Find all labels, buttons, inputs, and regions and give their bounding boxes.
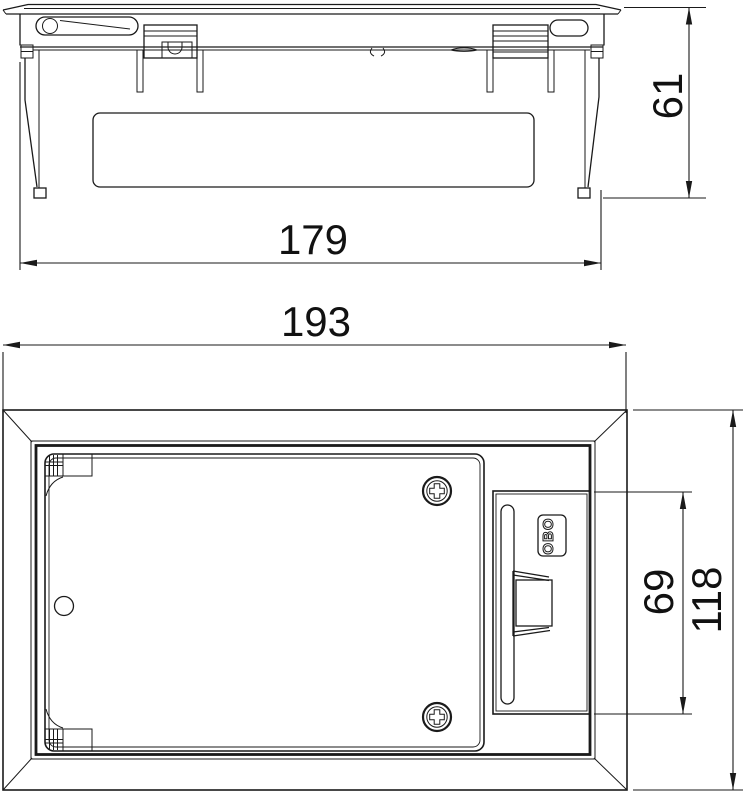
- plan-view: 193: [3, 298, 743, 790]
- finger-hole: [55, 597, 74, 616]
- cover-plate: [3, 5, 621, 15]
- obo-logo-text: OBO: [540, 517, 557, 554]
- support-rail: [20, 47, 603, 51]
- dim-label-193: 193: [281, 298, 351, 345]
- dim-label-179: 179: [278, 216, 348, 263]
- end-slot: [550, 20, 588, 36]
- technical-drawing-page: 61 179 193: [0, 0, 743, 794]
- dimension-179: 179: [20, 62, 601, 270]
- inner-opening-edge: [36, 446, 590, 755]
- latch-panel: OBO: [493, 491, 590, 714]
- dim-label-61: 61: [644, 73, 691, 120]
- box-tub: [21, 45, 603, 198]
- outer-frame: [3, 410, 627, 790]
- frame-miter-lines: [3, 410, 627, 790]
- hinge-top: [45, 454, 92, 496]
- obo-logo-badge: OBO: [538, 515, 566, 556]
- dimension-193: 193: [3, 298, 626, 413]
- floor-box-drawing: 61 179 193: [0, 0, 743, 794]
- phillips-screw-top-icon: [423, 477, 451, 505]
- dimension-61: 61: [603, 8, 706, 199]
- phillips-screw-bottom-icon: [423, 703, 451, 731]
- right-anchor-tower: [487, 25, 554, 92]
- hinge-bottom: [45, 709, 92, 751]
- side-elevation-view: 61 179: [3, 5, 706, 271]
- handle-slot: [501, 505, 514, 704]
- dimension-69: 69: [594, 492, 692, 714]
- left-anchor-tower: [137, 25, 203, 92]
- latch-cam: [513, 571, 552, 636]
- dim-label-118: 118: [683, 567, 730, 634]
- release-lever: [36, 17, 138, 35]
- center-clip-marks: [370, 48, 384, 56]
- lid: [45, 454, 484, 751]
- dim-label-69: 69: [635, 569, 682, 616]
- tub-recess: [93, 113, 534, 187]
